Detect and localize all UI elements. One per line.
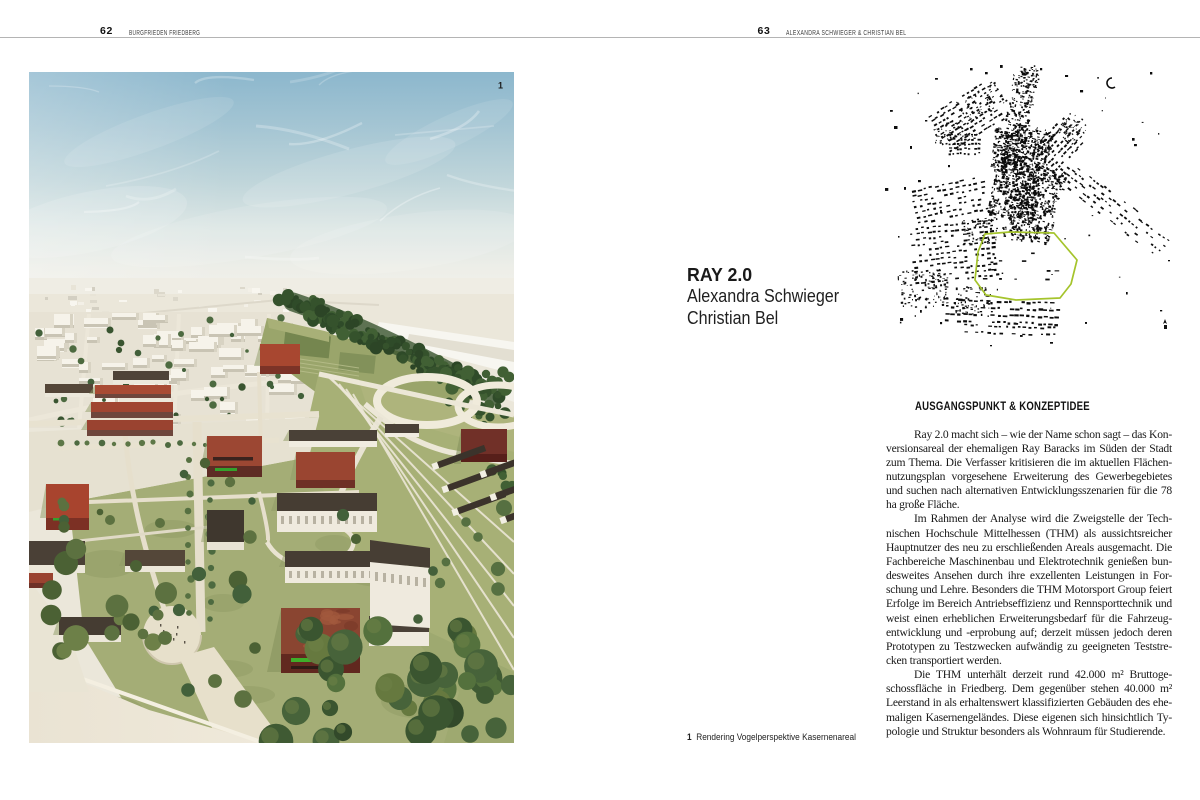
svg-text:1: 1 [498, 81, 503, 91]
